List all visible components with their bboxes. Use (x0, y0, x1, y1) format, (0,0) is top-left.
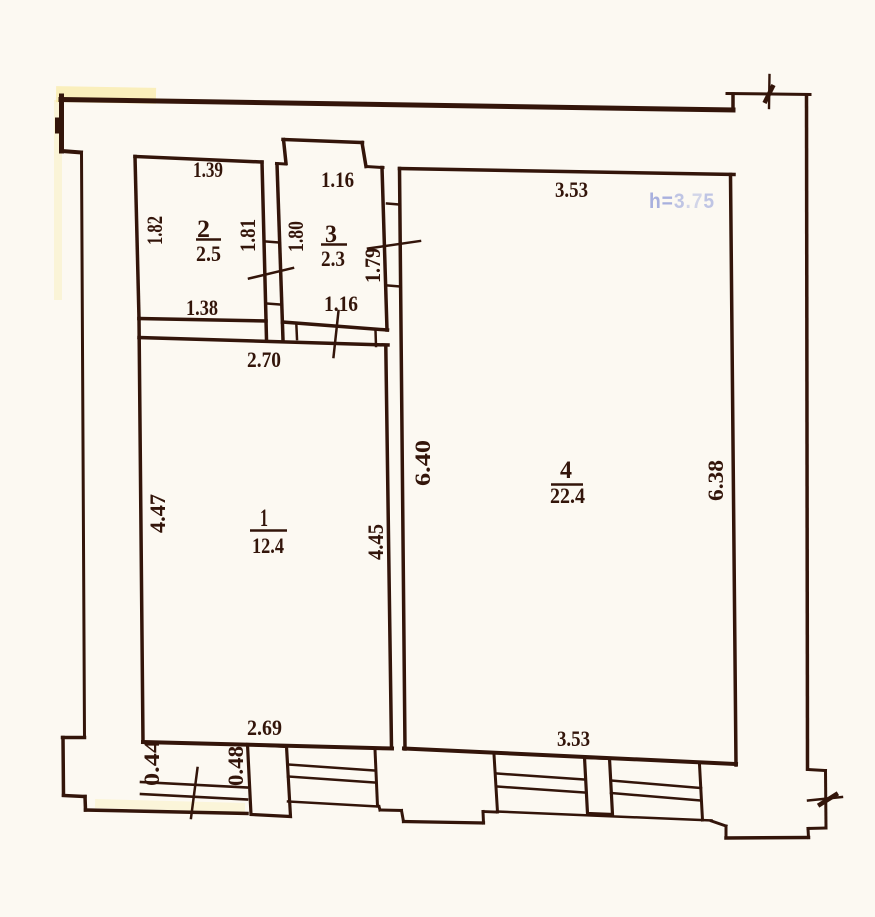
svg-text:1.80: 1.80 (283, 221, 308, 252)
svg-text:1.39: 1.39 (193, 157, 223, 182)
svg-text:4: 4 (560, 457, 572, 484)
svg-text:1.16: 1.16 (324, 291, 358, 316)
svg-text:2.70: 2.70 (247, 347, 281, 372)
svg-text:6.38: 6.38 (703, 460, 728, 501)
svg-text:4.47: 4.47 (145, 494, 170, 533)
svg-text:h=3.75: h=3.75 (649, 190, 715, 213)
svg-text:1.81: 1.81 (235, 219, 260, 252)
svg-text:4.45: 4.45 (363, 524, 388, 560)
svg-text:1.82: 1.82 (142, 216, 167, 245)
svg-text:3.53: 3.53 (557, 726, 590, 751)
svg-text:3.53: 3.53 (555, 177, 588, 202)
svg-text:1: 1 (260, 505, 268, 532)
svg-text:2.5: 2.5 (196, 241, 221, 266)
svg-text:1.38: 1.38 (186, 295, 218, 320)
svg-text:1.16: 1.16 (321, 167, 354, 192)
svg-text:2.3: 2.3 (321, 246, 345, 271)
svg-text:0.48: 0.48 (223, 746, 248, 786)
svg-text:12.4: 12.4 (252, 533, 284, 558)
svg-text:22.4: 22.4 (550, 483, 585, 508)
svg-text:2.69: 2.69 (247, 715, 282, 740)
svg-text:1.79: 1.79 (360, 248, 385, 283)
svg-text:0.44: 0.44 (139, 740, 164, 786)
svg-text:6.40: 6.40 (410, 440, 435, 486)
